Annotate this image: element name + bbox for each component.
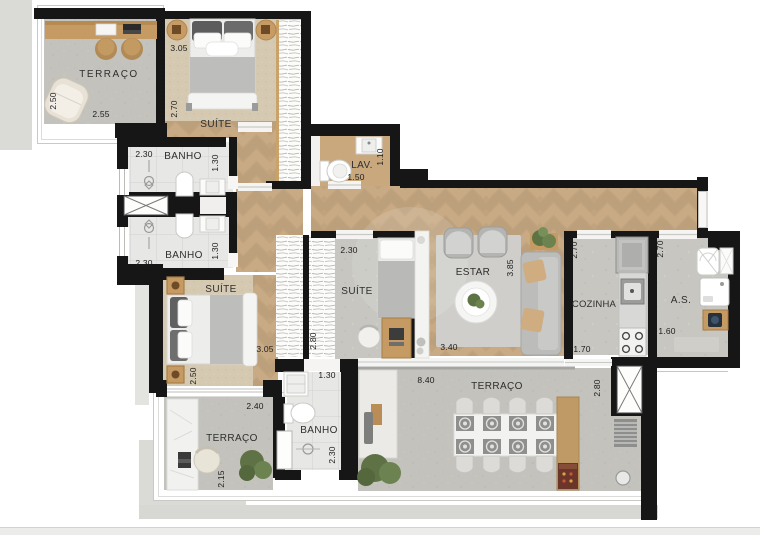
svg-text:2.30: 2.30 — [135, 258, 152, 268]
svg-text:2.15: 2.15 — [216, 470, 226, 487]
svg-text:2.80: 2.80 — [592, 379, 602, 396]
svg-text:1.70: 1.70 — [573, 344, 590, 354]
svg-text:SUÍTE: SUÍTE — [205, 282, 236, 295]
svg-text:1.30: 1.30 — [210, 242, 220, 259]
svg-text:2.80: 2.80 — [308, 332, 318, 349]
svg-text:2.55: 2.55 — [92, 109, 109, 119]
svg-text:2.30: 2.30 — [340, 245, 357, 255]
svg-text:ESTAR: ESTAR — [456, 267, 491, 278]
svg-text:3.85: 3.85 — [505, 259, 515, 276]
svg-text:2.50: 2.50 — [188, 367, 198, 384]
svg-text:2.40: 2.40 — [246, 401, 263, 411]
svg-text:1.60: 1.60 — [658, 326, 675, 336]
svg-text:SUÍTE: SUÍTE — [200, 117, 231, 130]
svg-text:2.50: 2.50 — [48, 92, 58, 109]
svg-text:TERRAÇO: TERRAÇO — [79, 69, 138, 80]
svg-text:3.05: 3.05 — [170, 43, 187, 53]
svg-text:SUÍTE: SUÍTE — [341, 284, 372, 297]
svg-text:TERRAÇO: TERRAÇO — [206, 433, 258, 444]
svg-text:2.30: 2.30 — [327, 446, 337, 463]
svg-text:BANHO: BANHO — [164, 151, 202, 162]
svg-text:BANHO: BANHO — [165, 250, 203, 261]
svg-text:A.S.: A.S. — [671, 295, 692, 306]
svg-text:COZINHA: COZINHA — [572, 299, 617, 310]
svg-text:2.70: 2.70 — [655, 240, 665, 257]
svg-text:8.40: 8.40 — [417, 375, 434, 385]
svg-text:3.05: 3.05 — [256, 344, 273, 354]
svg-text:1.10: 1.10 — [375, 148, 385, 165]
svg-text:2.30: 2.30 — [135, 149, 152, 159]
svg-text:1.50: 1.50 — [347, 172, 364, 182]
svg-text:BANHO: BANHO — [300, 425, 338, 436]
svg-text:1.30: 1.30 — [318, 370, 335, 380]
svg-text:LAV.: LAV. — [351, 160, 373, 171]
svg-text:3.40: 3.40 — [440, 342, 457, 352]
svg-text:1.30: 1.30 — [210, 154, 220, 171]
svg-text:2.70: 2.70 — [169, 100, 179, 117]
svg-text:TERRAÇO: TERRAÇO — [471, 381, 523, 392]
svg-text:2.70: 2.70 — [569, 241, 579, 258]
